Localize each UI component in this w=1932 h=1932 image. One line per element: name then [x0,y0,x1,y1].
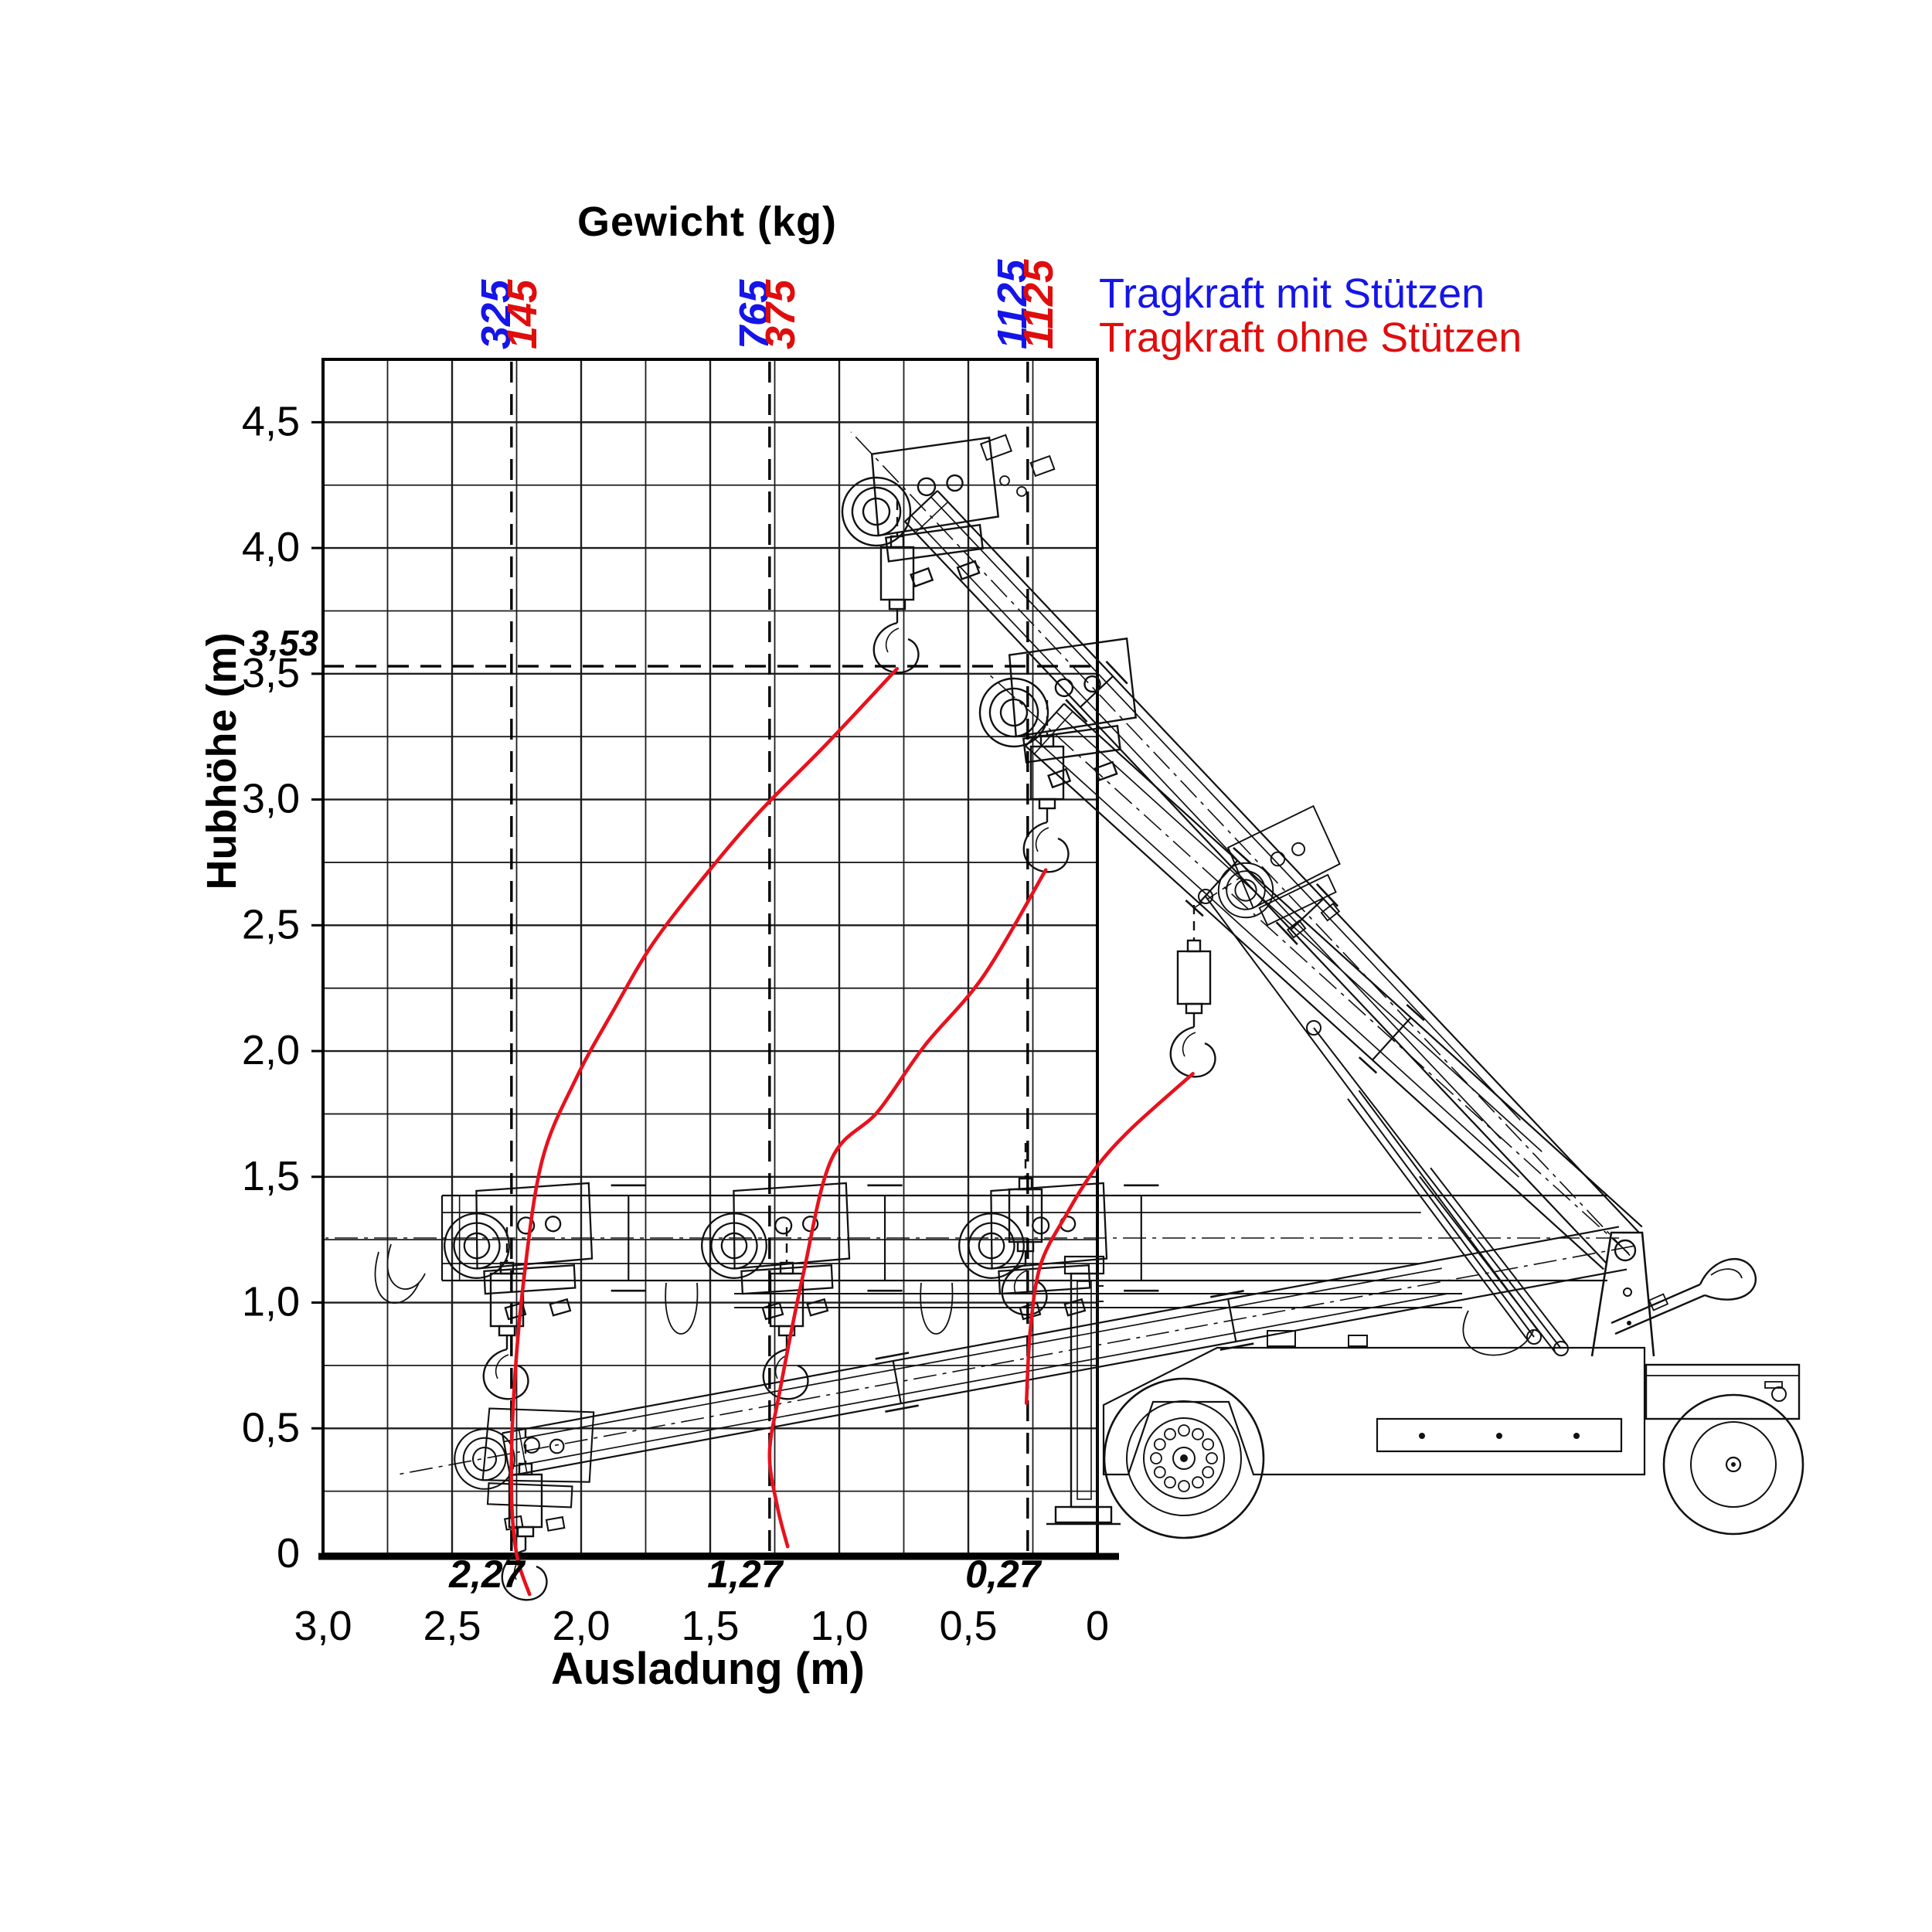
max-hook-height-label: 3,53 [249,623,318,663]
x-tick-label: 1,5 [681,1603,739,1649]
capacity-without-supports-label: 145 [499,279,546,349]
y-tick-label: 3,0 [242,776,300,822]
y-tick-label: 1,0 [242,1279,300,1325]
y-tick-label: 4,5 [242,398,300,444]
x-tick-label: 1,0 [810,1603,868,1649]
x-tick-label: 0,5 [939,1603,997,1649]
capacity-without-supports-label: 1125 [1015,259,1062,349]
outreach-value-label: 2,27 [448,1553,526,1596]
y-tick-label: 2,0 [242,1027,300,1073]
outreach-value-label: 0,27 [965,1553,1043,1596]
load-capacity-diagram-page: Gewicht (kg) Tragkraft mit Stützen Tragk… [0,0,1932,1932]
outreach-value-label: 1,27 [707,1553,784,1596]
y-tick-label: 0 [277,1530,300,1577]
crane-drawing [325,414,1803,1600]
chart-tick-labels: 4,54,03,53,02,52,01,51,00,503,533,02,52,… [242,259,1109,1649]
load-chart-canvas: 4,54,03,53,02,52,01,51,00,503,533,02,52,… [0,0,1932,1932]
capacity-without-supports-label: 375 [757,279,804,349]
x-tick-label: 2,0 [552,1603,610,1649]
x-tick-label: 3,0 [294,1603,352,1649]
x-tick-label: 2,5 [423,1603,481,1649]
x-tick-label: 0 [1086,1603,1109,1649]
y-tick-label: 1,5 [242,1153,300,1199]
y-tick-label: 0,5 [242,1404,300,1451]
y-tick-label: 2,5 [242,901,300,947]
hook-path-outreach-1.27 [770,870,1046,1547]
y-tick-label: 4,0 [242,524,300,570]
